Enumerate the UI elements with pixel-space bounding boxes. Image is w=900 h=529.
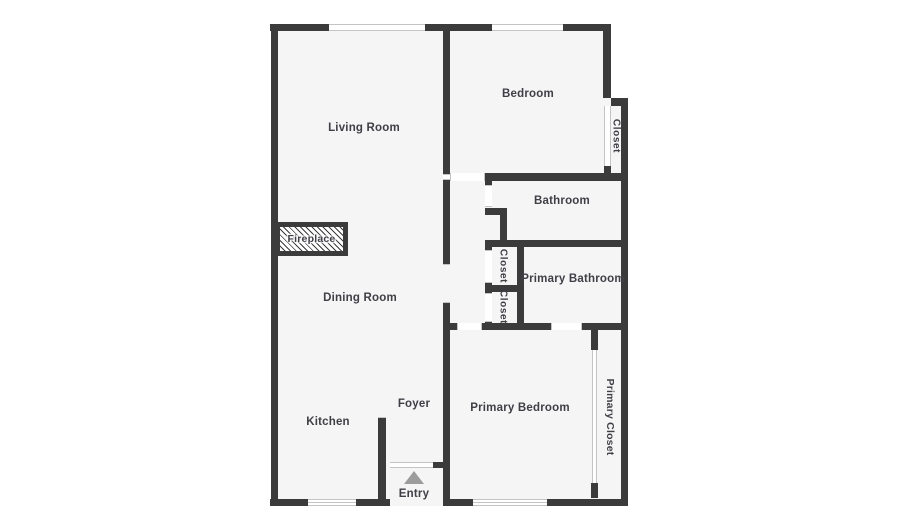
primary-bedroom-label: Primary Bedroom xyxy=(470,402,570,414)
foyer-label: Foyer xyxy=(398,398,430,410)
hall-closet-upper-label: Closet xyxy=(498,249,509,283)
living-room-label: Living Room xyxy=(328,122,400,134)
wall-primary-closet-stub-top xyxy=(591,330,598,350)
entry-label: Entry xyxy=(399,488,429,500)
wall-bottom-segment-4 xyxy=(547,499,628,506)
dining-room-label: Dining Room xyxy=(323,292,397,304)
door-opening-closet-upper xyxy=(485,250,492,283)
wall-closets-west-stub-1 xyxy=(485,240,492,250)
wall-bedroom-closet-bottom-stub xyxy=(604,166,611,175)
opening-cap-dining-top xyxy=(443,264,450,265)
exterior-notch xyxy=(611,24,628,98)
wall-top-segment-2 xyxy=(425,24,492,31)
wall-primary-closet-stub-bottom xyxy=(591,483,598,498)
wall-bottom-segment-1 xyxy=(270,499,308,506)
wall-closets-east xyxy=(517,240,524,330)
door-opening-bathroom xyxy=(485,185,492,207)
kitchen-label: Kitchen xyxy=(306,416,350,428)
wall-central-middle xyxy=(443,180,450,265)
door-opening-primary-bedroom xyxy=(457,323,482,330)
floor-plan: Fireplace Living Room Bedroom Closet Bat… xyxy=(0,0,900,529)
wall-central-upper xyxy=(443,24,450,174)
bedroom-label: Bedroom xyxy=(502,88,554,100)
wall-right-outer xyxy=(621,98,628,506)
wall-entry-jamb xyxy=(433,462,445,468)
wall-central-lower xyxy=(443,303,450,506)
wall-bath-divider xyxy=(485,240,628,247)
wall-primary-bedroom-top xyxy=(482,323,551,330)
entry-threshold xyxy=(390,462,433,468)
primary-closet-door-line xyxy=(592,350,597,483)
window-bedroom xyxy=(492,24,563,31)
primary-bathroom-label: Primary Bathroom xyxy=(521,273,625,285)
fireplace-label: Fireplace xyxy=(288,233,336,245)
entry-arrow-icon xyxy=(404,471,424,484)
primary-closet-label: Primary Closet xyxy=(604,379,616,456)
fireplace: Fireplace xyxy=(275,222,348,256)
hall-closet-lower-label: Closet xyxy=(498,290,509,324)
window-kitchen xyxy=(308,499,356,506)
door-opening-closet-lower xyxy=(485,293,492,322)
window-living-room xyxy=(329,24,425,31)
door-opening-primary-bathroom xyxy=(551,323,582,330)
window-primary-bedroom xyxy=(473,499,547,506)
wall-top-segment-1 xyxy=(270,24,329,31)
door-opening-bedroom xyxy=(450,173,485,181)
wall-primary-bathroom-bottom-east xyxy=(582,323,628,330)
wall-left-outer xyxy=(271,24,278,506)
wall-kitchen-divider xyxy=(378,418,386,506)
wall-hall-bottom-stub xyxy=(443,323,457,330)
wall-bedroom-right xyxy=(603,24,611,98)
bedroom-closet-label: Closet xyxy=(611,119,622,153)
bathroom-label: Bathroom xyxy=(534,195,590,207)
